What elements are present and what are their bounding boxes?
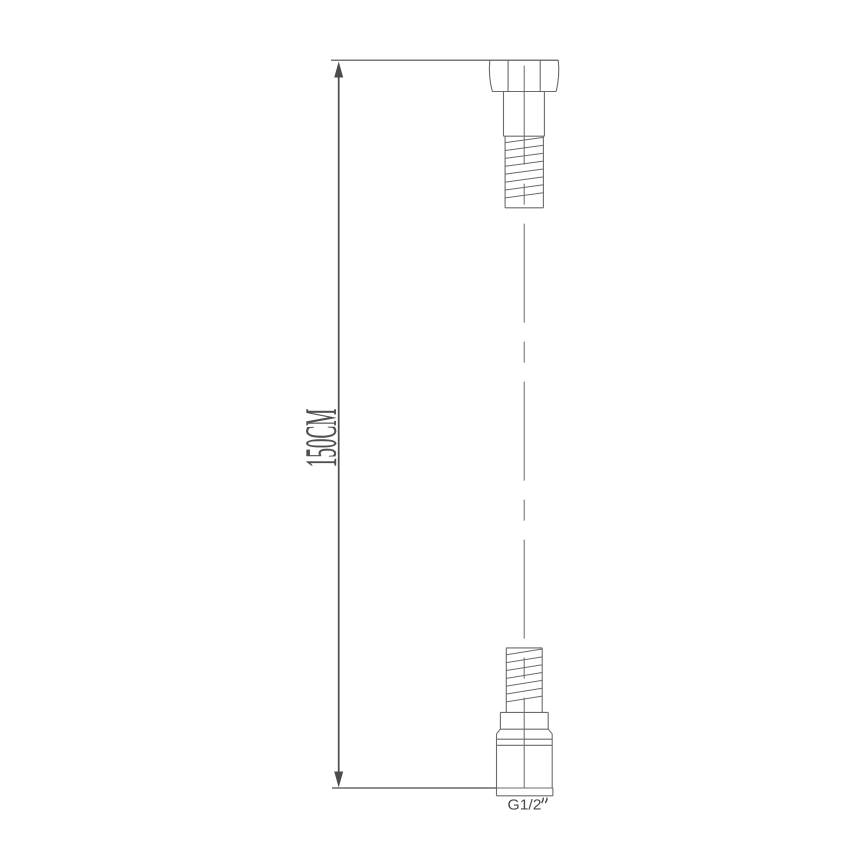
svg-text:150CM: 150CM: [298, 409, 346, 467]
svg-text:G1/2: G1/2: [507, 797, 541, 813]
